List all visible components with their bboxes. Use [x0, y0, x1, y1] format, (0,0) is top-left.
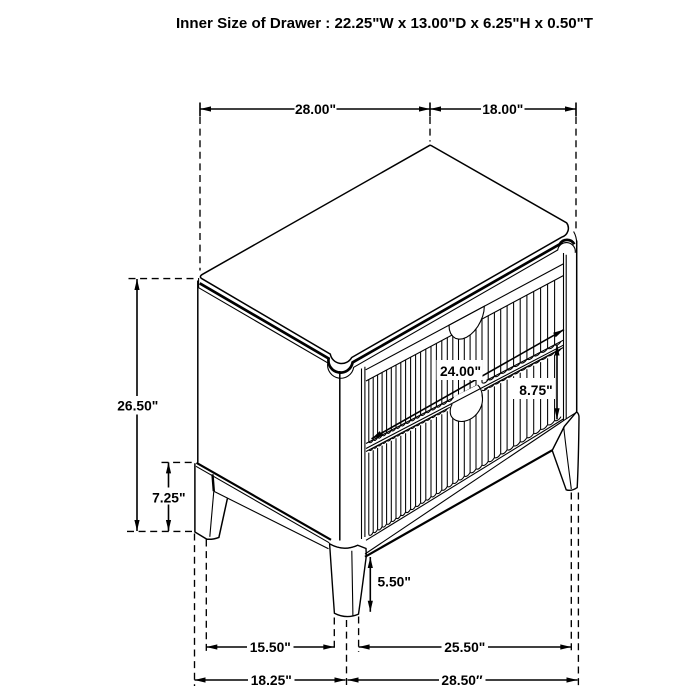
svg-text:18.00": 18.00"	[482, 102, 523, 117]
svg-text:15.50": 15.50"	[250, 640, 291, 655]
svg-text:24.00": 24.00"	[440, 364, 481, 379]
svg-text:Inner Size of Drawer : 22.25"W: Inner Size of Drawer : 22.25"W x 13.00"D…	[176, 15, 594, 32]
svg-text:28.00": 28.00"	[295, 102, 336, 117]
svg-text:28.50″: 28.50″	[441, 673, 483, 688]
svg-text:8.75": 8.75"	[519, 383, 552, 398]
svg-text:18.25": 18.25"	[251, 673, 292, 688]
svg-text:25.50": 25.50"	[444, 640, 485, 655]
svg-text:5.50": 5.50"	[378, 575, 411, 590]
svg-text:26.50": 26.50"	[117, 399, 158, 414]
svg-text:7.25": 7.25"	[152, 490, 185, 505]
